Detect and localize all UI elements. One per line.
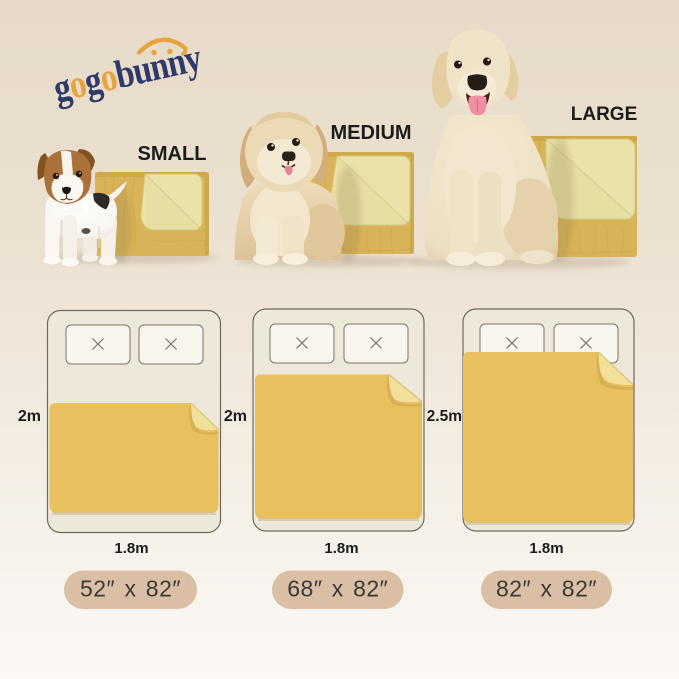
svg-text:2.5m: 2.5m — [427, 408, 462, 425]
svg-text:LARGE: LARGE — [571, 104, 638, 125]
svg-text:SMALL: SMALL — [138, 143, 207, 165]
svg-text:1.8m: 1.8m — [114, 540, 148, 557]
svg-text:52″ x 82″: 52″ x 82″ — [80, 576, 181, 602]
svg-text:2m: 2m — [18, 408, 41, 425]
svg-text:68″ x 82″: 68″ x 82″ — [287, 576, 388, 602]
svg-text:MEDIUM: MEDIUM — [330, 122, 411, 144]
svg-text:2m: 2m — [224, 408, 247, 425]
svg-text:1.8m: 1.8m — [529, 540, 563, 557]
svg-text:82″ x 82″: 82″ x 82″ — [496, 576, 597, 602]
svg-text:1.8m: 1.8m — [324, 540, 358, 557]
